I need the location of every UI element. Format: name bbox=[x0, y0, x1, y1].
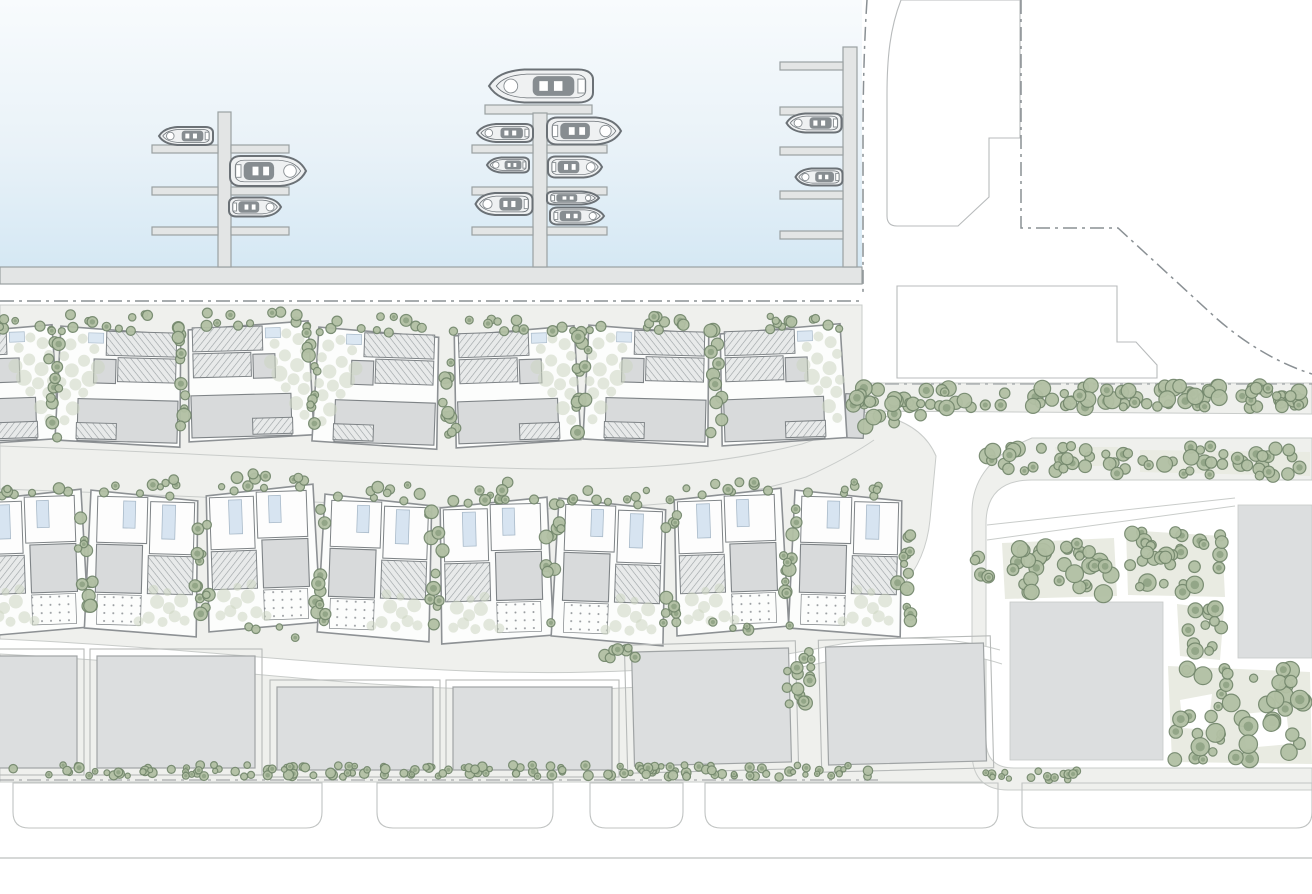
promenade-bay bbox=[377, 783, 553, 828]
dock-segment bbox=[152, 227, 218, 235]
dock-segment bbox=[231, 227, 289, 235]
slab-building bbox=[624, 641, 798, 773]
boat bbox=[796, 169, 843, 186]
dock-segment bbox=[843, 47, 857, 267]
dock-segment bbox=[547, 145, 607, 153]
dock-segment bbox=[533, 113, 547, 267]
dock-segment bbox=[780, 231, 843, 239]
dock-segment bbox=[780, 147, 843, 155]
slab-building bbox=[0, 649, 84, 775]
promenade-bay bbox=[13, 783, 322, 828]
boat bbox=[229, 198, 281, 217]
villa-plot bbox=[788, 488, 904, 637]
dock-segment bbox=[231, 145, 289, 153]
dock-segment bbox=[218, 112, 231, 267]
villa-plot bbox=[452, 322, 581, 448]
villa-plot bbox=[204, 482, 321, 632]
boat bbox=[548, 157, 602, 178]
boat bbox=[547, 192, 599, 205]
boat bbox=[550, 208, 604, 225]
villa-plot bbox=[84, 488, 200, 637]
boat bbox=[487, 158, 529, 173]
site-plan bbox=[0, 0, 1312, 894]
promenade-bay bbox=[590, 783, 683, 828]
dock-segment bbox=[152, 145, 218, 153]
villa-plot bbox=[438, 495, 554, 644]
boat bbox=[489, 70, 593, 103]
masterplan-drawing bbox=[0, 0, 1312, 894]
villa-plot bbox=[55, 322, 183, 447]
promenade-bay bbox=[705, 783, 998, 828]
villa-plot bbox=[672, 486, 789, 636]
boat bbox=[230, 156, 306, 186]
boat bbox=[787, 114, 842, 133]
villa-plot bbox=[0, 487, 89, 637]
dock-segment bbox=[231, 187, 289, 195]
boat bbox=[476, 193, 533, 215]
east-building bbox=[1010, 602, 1163, 760]
boat bbox=[159, 127, 213, 145]
villa-plot bbox=[551, 496, 668, 646]
parcel-outline-east bbox=[897, 286, 1157, 378]
parcel-outline-north bbox=[887, 0, 1020, 226]
dock-segment bbox=[780, 62, 843, 70]
dock-segment bbox=[0, 267, 862, 284]
slab-building bbox=[90, 649, 262, 775]
dock-segment bbox=[547, 227, 607, 235]
dock-segment bbox=[472, 145, 533, 153]
boat bbox=[547, 118, 621, 145]
dock-segment bbox=[780, 191, 843, 199]
east-building bbox=[1238, 505, 1312, 658]
slab-building bbox=[270, 680, 440, 777]
villa-plot bbox=[317, 492, 434, 642]
dock-segment bbox=[472, 227, 533, 235]
boat bbox=[477, 124, 533, 142]
villa-plot bbox=[186, 317, 314, 442]
slab-building bbox=[818, 636, 993, 772]
villa-plot bbox=[718, 320, 847, 446]
villa-plot bbox=[583, 321, 711, 446]
boundary-line-harbour-east bbox=[863, 0, 867, 292]
harbour-water bbox=[0, 0, 862, 268]
dock-segment bbox=[152, 187, 218, 195]
villa-plot bbox=[312, 323, 441, 449]
